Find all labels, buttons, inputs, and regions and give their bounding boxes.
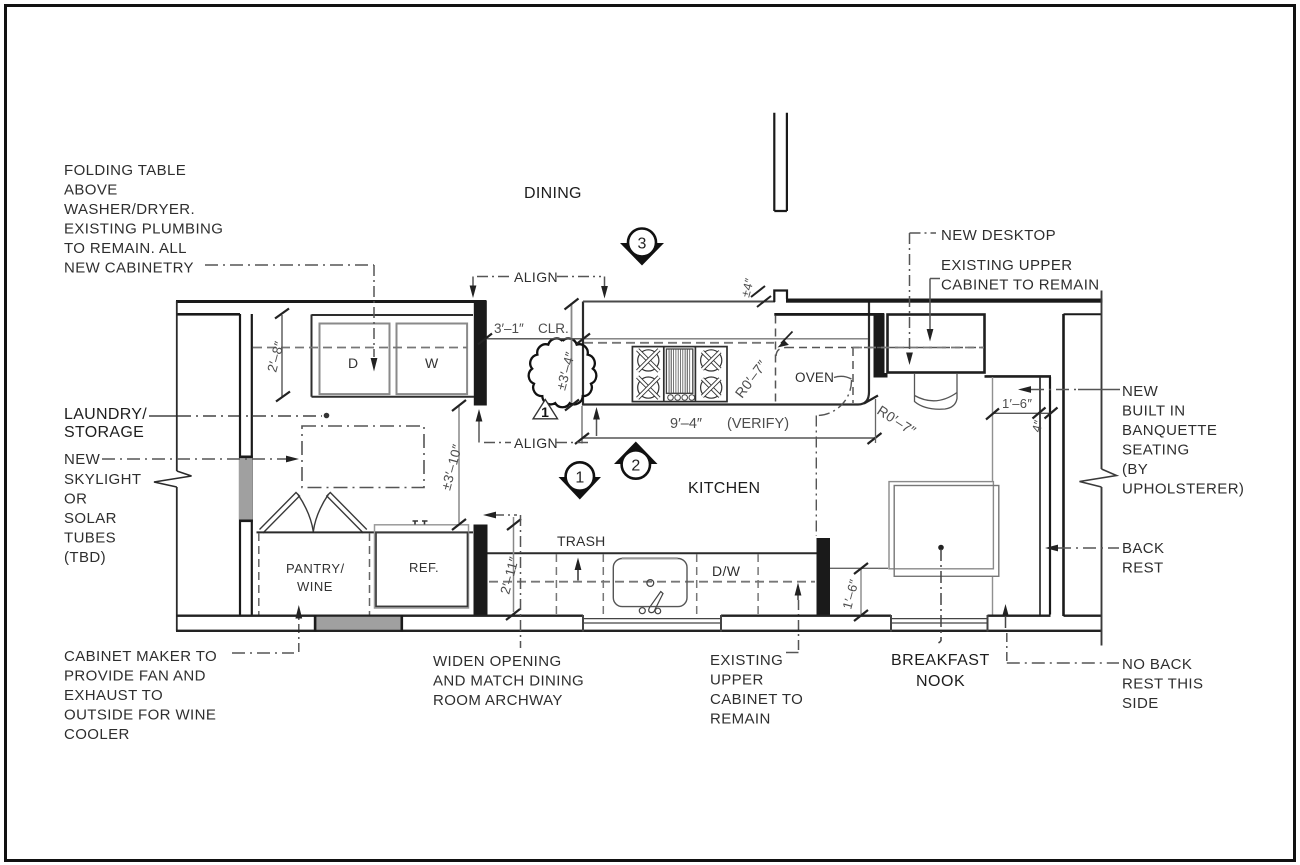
svg-text:CABINET TO: CABINET TO — [710, 691, 803, 708]
svg-text:AND MATCH DINING: AND MATCH DINING — [433, 673, 584, 690]
svg-text:OR: OR — [64, 491, 87, 508]
svg-text:3: 3 — [638, 236, 647, 253]
svg-text:(BY: (BY — [1122, 461, 1148, 478]
svg-text:UPPER: UPPER — [710, 672, 764, 689]
svg-text:BUILT IN: BUILT IN — [1122, 403, 1186, 420]
svg-text:WASHER/DRYER.: WASHER/DRYER. — [64, 201, 195, 218]
svg-text:EXISTING: EXISTING — [710, 652, 783, 669]
svg-text:9′–4″: 9′–4″ — [670, 416, 702, 432]
svg-text:TRASH: TRASH — [557, 533, 605, 549]
svg-text:ROOM ARCHWAY: ROOM ARCHWAY — [433, 692, 563, 709]
svg-text:BANQUETTE: BANQUETTE — [1122, 422, 1217, 439]
svg-text:WIDEN OPENING: WIDEN OPENING — [433, 653, 562, 670]
svg-text:D/W: D/W — [712, 563, 741, 579]
svg-text:REST: REST — [1122, 560, 1164, 577]
svg-text:W: W — [425, 355, 439, 371]
svg-text:CLR.: CLR. — [538, 321, 569, 336]
svg-text:ALIGN: ALIGN — [514, 435, 558, 451]
svg-text:NO BACK: NO BACK — [1122, 656, 1192, 673]
svg-text:FOLDING TABLE: FOLDING TABLE — [64, 162, 186, 179]
svg-text:WINE: WINE — [297, 579, 333, 594]
svg-text:ABOVE: ABOVE — [64, 182, 118, 199]
svg-text:DINING: DINING — [524, 185, 582, 202]
svg-text:NEW CABINETRY: NEW CABINETRY — [64, 260, 194, 277]
svg-text:UPHOLSTERER): UPHOLSTERER) — [1122, 481, 1244, 498]
svg-text:EXHAUST TO: EXHAUST TO — [64, 687, 163, 704]
svg-text:BREAKFAST: BREAKFAST — [891, 652, 990, 669]
svg-text:(VERIFY): (VERIFY) — [727, 416, 789, 432]
svg-text:EXISTING PLUMBING: EXISTING PLUMBING — [64, 221, 223, 238]
svg-text:1: 1 — [541, 404, 549, 420]
svg-text:SEATING: SEATING — [1122, 442, 1190, 459]
svg-text:NOOK: NOOK — [916, 673, 965, 690]
svg-text:(TBD): (TBD) — [64, 549, 106, 566]
svg-text:SKYLIGHT: SKYLIGHT — [64, 471, 141, 488]
svg-text:REST THIS: REST THIS — [1122, 676, 1203, 693]
svg-text:COOLER: COOLER — [64, 726, 130, 743]
svg-text:EXISTING UPPER: EXISTING UPPER — [941, 257, 1072, 274]
svg-text:LAUNDRY/: LAUNDRY/ — [64, 406, 147, 423]
svg-text:3′–1″: 3′–1″ — [494, 321, 524, 336]
svg-text:SOLAR: SOLAR — [64, 510, 117, 527]
svg-text:CABINET MAKER TO: CABINET MAKER TO — [64, 648, 217, 665]
svg-text:OUTSIDE FOR WINE: OUTSIDE FOR WINE — [64, 707, 216, 724]
svg-text:STORAGE: STORAGE — [64, 424, 144, 441]
svg-text:CABINET TO REMAIN: CABINET TO REMAIN — [941, 277, 1100, 294]
svg-text:NEW: NEW — [1122, 383, 1159, 400]
svg-text:1′–6″: 1′–6″ — [1002, 396, 1032, 411]
svg-text:NEW DESKTOP: NEW DESKTOP — [941, 227, 1056, 244]
svg-text:1: 1 — [575, 470, 584, 487]
svg-text:REMAIN: REMAIN — [710, 711, 771, 728]
svg-text:PROVIDE FAN AND: PROVIDE FAN AND — [64, 668, 206, 685]
svg-text:REF.: REF. — [409, 560, 439, 575]
svg-text:KITCHEN: KITCHEN — [688, 480, 760, 497]
svg-text:TO REMAIN. ALL: TO REMAIN. ALL — [64, 240, 187, 257]
svg-text:NEW: NEW — [64, 451, 101, 468]
svg-text:2: 2 — [631, 458, 640, 475]
svg-text:TUBES: TUBES — [64, 530, 116, 547]
svg-text:D: D — [348, 355, 359, 371]
svg-text:BACK: BACK — [1122, 540, 1164, 557]
svg-text:SIDE: SIDE — [1122, 695, 1159, 712]
svg-text:PANTRY/: PANTRY/ — [286, 561, 345, 576]
svg-text:ALIGN: ALIGN — [514, 269, 558, 285]
svg-text:OVEN: OVEN — [795, 370, 834, 385]
